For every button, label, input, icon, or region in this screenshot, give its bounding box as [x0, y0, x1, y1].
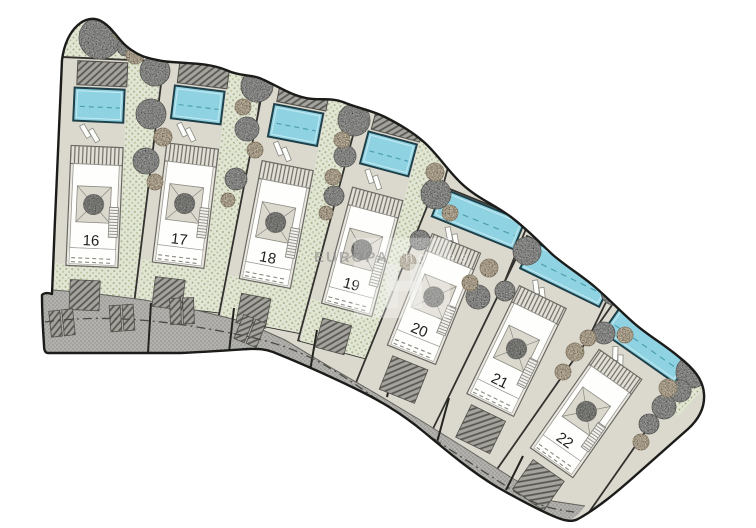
bush [633, 434, 649, 450]
bush [154, 128, 172, 146]
parking-stall [170, 298, 182, 324]
carport [77, 61, 128, 87]
bush [442, 205, 458, 221]
site-area: 16171819202122 [40, 14, 708, 528]
patio-tree [83, 194, 104, 215]
bush [400, 254, 416, 270]
tree [225, 168, 247, 190]
bush [555, 364, 571, 380]
tree [495, 281, 515, 301]
bush [147, 174, 163, 190]
bush [426, 163, 444, 181]
pergola-band [70, 145, 123, 165]
bush [692, 347, 708, 363]
bush [319, 206, 333, 220]
parking-stall [49, 310, 63, 337]
parking-stall [183, 298, 195, 324]
driveway-hatch [69, 280, 100, 311]
tree [410, 230, 430, 250]
site-plan-drawing: 16171819202122 [0, 0, 756, 528]
bush [580, 330, 596, 346]
tree [136, 99, 166, 129]
bush [617, 327, 633, 343]
bush [247, 142, 263, 158]
tree [235, 117, 259, 141]
tree [513, 237, 541, 265]
sun-lounger [613, 346, 618, 360]
tree [133, 148, 159, 174]
bush [235, 99, 251, 115]
bush [480, 259, 498, 277]
tree [601, 279, 627, 305]
stairs [108, 207, 118, 237]
tree [334, 145, 356, 167]
bush [462, 275, 478, 291]
bush [566, 343, 584, 361]
bush [659, 379, 677, 397]
bush [325, 169, 341, 185]
bush [221, 193, 235, 207]
bush [334, 132, 350, 148]
plot-number-16: 16 [82, 232, 99, 250]
tree [421, 179, 451, 209]
parking-stall [122, 304, 135, 331]
tree [79, 17, 121, 59]
parking-stall [62, 309, 76, 336]
plot-number-17: 17 [170, 230, 189, 249]
plot-number-18: 18 [258, 248, 278, 268]
tree [639, 414, 659, 434]
bush [113, 24, 129, 40]
tree [324, 186, 344, 206]
tree [593, 322, 615, 344]
site-plan-canvas: 16171819202122 EUROPA homes [0, 0, 756, 528]
driveway-16 [69, 280, 100, 311]
tree [652, 395, 676, 419]
